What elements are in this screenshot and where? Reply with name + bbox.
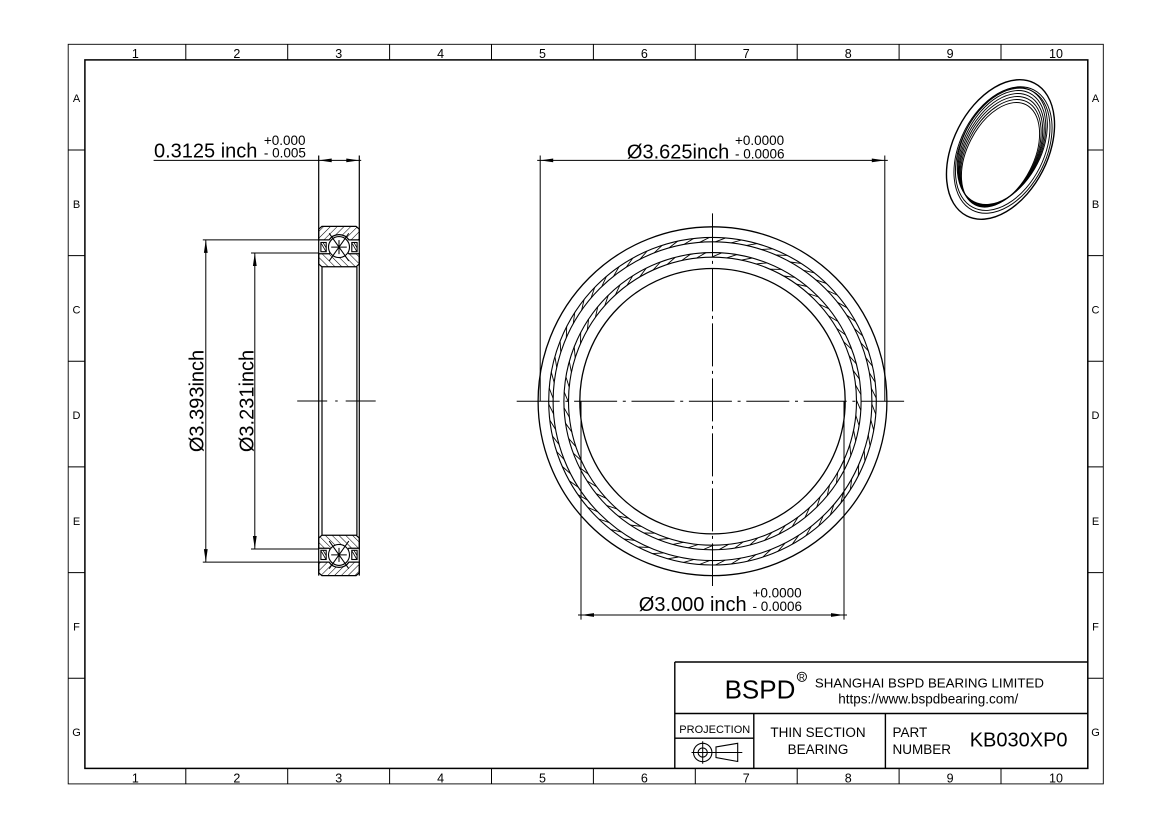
svg-text:5: 5: [539, 47, 546, 61]
svg-text:- 0.0006: - 0.0006: [753, 599, 803, 614]
svg-text:- 0.005: - 0.005: [264, 145, 306, 160]
svg-text:C: C: [73, 304, 81, 316]
svg-text:6: 6: [641, 47, 648, 61]
svg-text:Ø3.000 inch: Ø3.000 inch: [639, 594, 747, 616]
svg-text:- 0.0006: - 0.0006: [735, 146, 785, 161]
svg-text:R: R: [799, 673, 805, 682]
svg-text:D: D: [1092, 410, 1100, 422]
svg-text:https://www.bspdbearing.com/: https://www.bspdbearing.com/: [838, 692, 1018, 707]
svg-text:PART: PART: [893, 725, 928, 740]
svg-text:BSPD: BSPD: [725, 674, 796, 704]
svg-text:0.3125 inch: 0.3125 inch: [154, 141, 257, 163]
svg-text:B: B: [1092, 199, 1099, 211]
svg-text:F: F: [73, 621, 80, 633]
svg-text:10: 10: [1049, 771, 1063, 785]
svg-text:Ø3.625inch: Ø3.625inch: [627, 142, 729, 164]
svg-text:A: A: [1092, 93, 1100, 105]
svg-text:PROJECTION: PROJECTION: [679, 724, 750, 736]
svg-text:9: 9: [947, 771, 954, 785]
svg-text:4: 4: [437, 771, 444, 785]
svg-text:2: 2: [233, 47, 240, 61]
svg-text:5: 5: [539, 771, 546, 785]
svg-text:KB030XP0: KB030XP0: [970, 730, 1068, 752]
svg-text:F: F: [1092, 621, 1099, 633]
svg-text:4: 4: [437, 47, 444, 61]
svg-text:NUMBER: NUMBER: [893, 742, 952, 757]
svg-text:7: 7: [743, 47, 750, 61]
svg-text:2: 2: [233, 771, 240, 785]
svg-text:SHANGHAI BSPD BEARING LIMITED: SHANGHAI BSPD BEARING LIMITED: [815, 675, 1044, 690]
svg-text:8: 8: [845, 771, 852, 785]
svg-text:C: C: [1092, 304, 1100, 316]
svg-text:6: 6: [641, 771, 648, 785]
svg-text:Ø3.231inch: Ø3.231inch: [237, 350, 259, 452]
svg-text:1: 1: [132, 47, 139, 61]
svg-text:D: D: [73, 410, 81, 422]
svg-text:G: G: [1091, 727, 1100, 739]
svg-text:THIN SECTION: THIN SECTION: [770, 725, 865, 740]
svg-text:1: 1: [132, 771, 139, 785]
svg-text:B: B: [73, 199, 80, 211]
svg-text:G: G: [72, 727, 81, 739]
svg-text:BEARING: BEARING: [788, 742, 849, 757]
svg-text:3: 3: [335, 771, 342, 785]
svg-text:7: 7: [743, 771, 750, 785]
svg-text:A: A: [73, 93, 81, 105]
svg-text:9: 9: [947, 47, 954, 61]
svg-text:10: 10: [1049, 47, 1063, 61]
svg-text:Ø3.393inch: Ø3.393inch: [187, 350, 209, 452]
svg-text:E: E: [1092, 516, 1099, 528]
svg-text:3: 3: [335, 47, 342, 61]
svg-text:E: E: [73, 516, 80, 528]
svg-text:8: 8: [845, 47, 852, 61]
